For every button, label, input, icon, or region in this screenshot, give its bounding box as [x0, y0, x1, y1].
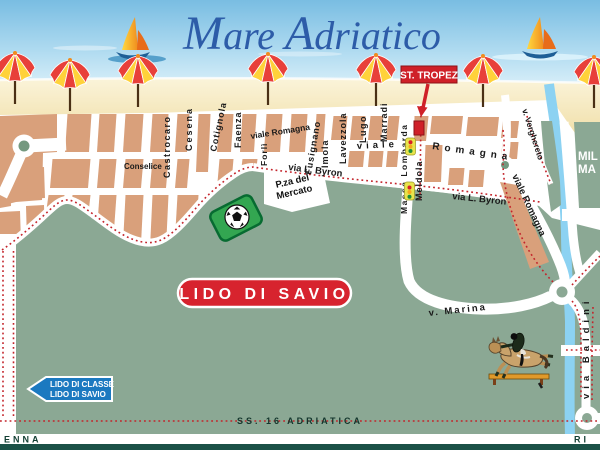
- svg-text:Castrocaro: Castrocaro: [162, 115, 172, 178]
- svg-text:ENNA: ENNA: [4, 435, 42, 445]
- svg-text:via Baldini: via Baldini: [581, 296, 592, 399]
- svg-text:Meldola: Meldola: [414, 160, 424, 201]
- svg-text:RI: RI: [574, 435, 589, 445]
- svg-text:Forlì: Forlì: [259, 143, 269, 166]
- svg-text:LIDO DI SAVIO: LIDO DI SAVIO: [179, 286, 349, 303]
- svg-text:Conselice: Conselice: [124, 162, 162, 171]
- svg-text:LIDO DI CLASSE: LIDO DI CLASSE: [50, 380, 115, 389]
- svg-text:viale: viale: [357, 139, 399, 152]
- svg-text:Lavezzola: Lavezzola: [338, 112, 348, 164]
- svg-text:MIL: MIL: [578, 151, 598, 163]
- svg-text:Mare Adriatico: Mare Adriatico: [182, 7, 441, 60]
- svg-text:Massa Lombarda: Massa Lombarda: [399, 124, 409, 214]
- svg-text:LIDO DI SAVIO: LIDO DI SAVIO: [50, 390, 106, 399]
- svg-text:Faenza: Faenza: [233, 111, 243, 148]
- svg-text:Imola: Imola: [320, 139, 330, 168]
- svg-text:ST. TROPEZ: ST. TROPEZ: [400, 71, 458, 82]
- svg-text:SS. 16 ADRIATICA: SS. 16 ADRIATICA: [237, 416, 363, 426]
- svg-text:Cesena: Cesena: [184, 107, 194, 151]
- svg-text:Marradi: Marradi: [379, 102, 389, 142]
- svg-text:Lugo: Lugo: [358, 115, 368, 143]
- svg-text:MA: MA: [578, 164, 596, 176]
